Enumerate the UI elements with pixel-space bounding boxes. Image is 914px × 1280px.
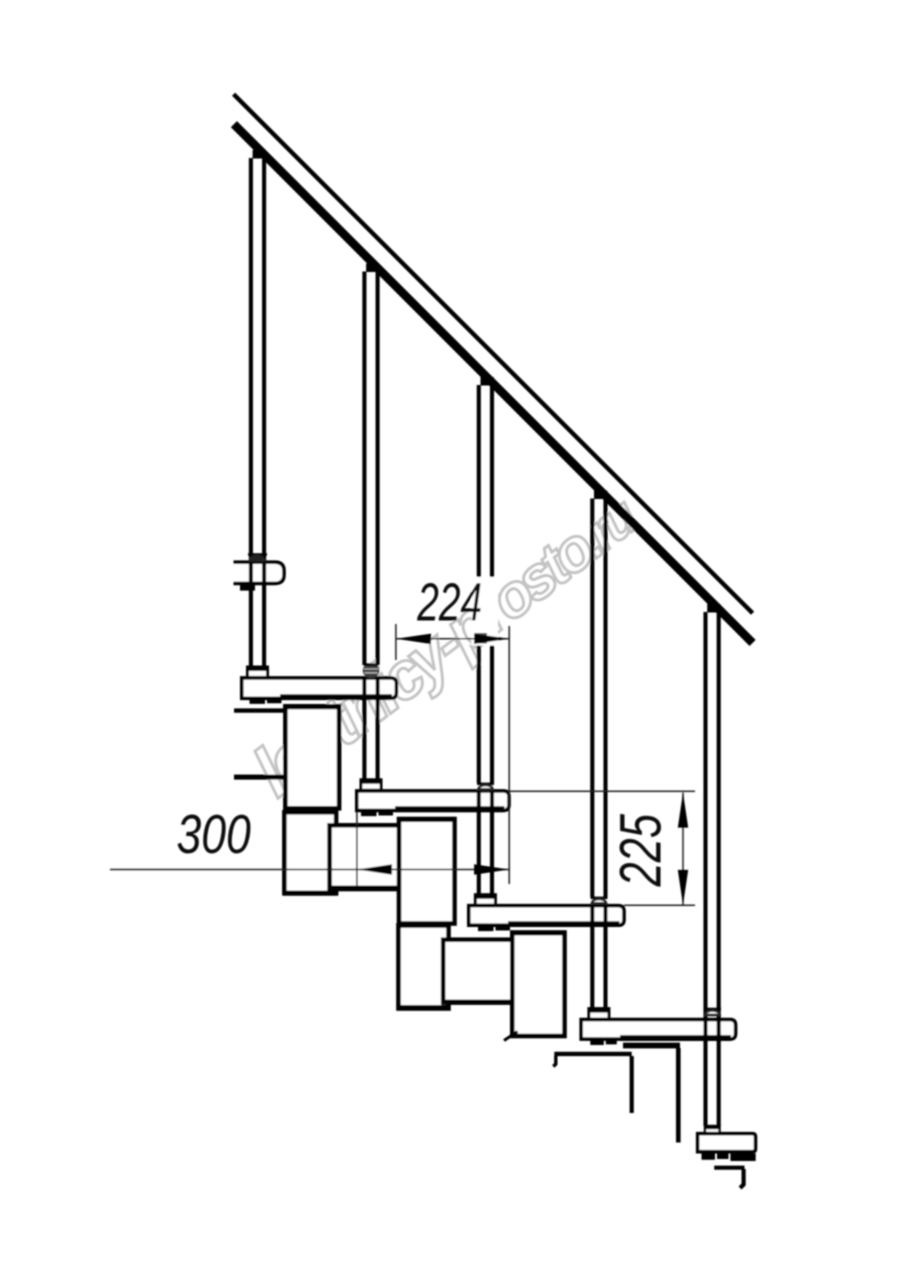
svg-text:225: 225 xyxy=(608,814,672,888)
svg-text:300: 300 xyxy=(177,804,251,866)
svg-text:224: 224 xyxy=(416,571,482,632)
